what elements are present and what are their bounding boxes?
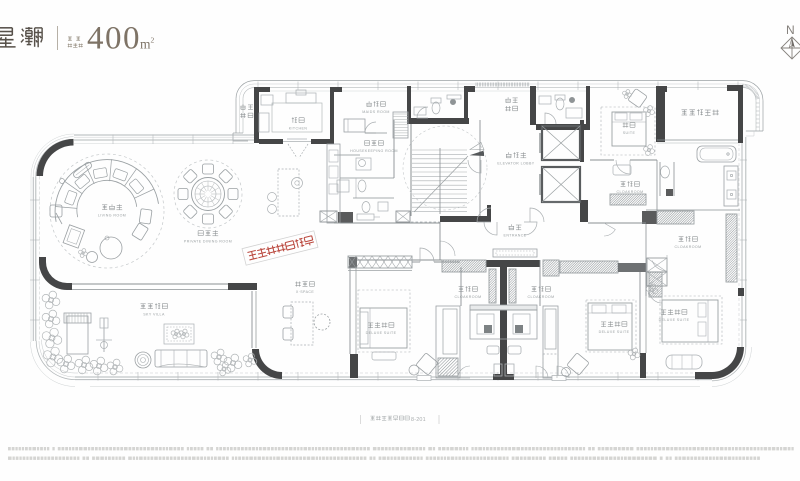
svg-text:CLOAKROOM: CLOAKROOM [675,245,702,249]
svg-text:MAIDS ROOM: MAIDS ROOM [362,110,390,114]
svg-text:LIVING ROOM: LIVING ROOM [98,213,126,217]
svg-text:DELUXE SUITE: DELUXE SUITE [599,330,630,334]
svg-text:400: 400 [87,21,141,57]
svg-text:X·SPACE: X·SPACE [296,290,315,294]
svg-text:KITCHEN: KITCHEN [289,126,308,130]
svg-text:DELUXE SUITE: DELUXE SUITE [366,331,397,335]
svg-text:SKY VILLA: SKY VILLA [143,312,165,316]
svg-text:8-201: 8-201 [411,417,426,423]
svg-text:SUITE: SUITE [623,131,636,135]
svg-text:CLOAKROOM: CLOAKROOM [455,295,482,299]
svg-text:CLOAKROOM: CLOAKROOM [617,190,644,194]
svg-text:ELEVATOR LOBBY: ELEVATOR LOBBY [497,161,534,165]
svg-text:ENTRANCE: ENTRANCE [504,233,527,237]
svg-text:PRIVATE DINING ROOM: PRIVATE DINING ROOM [184,239,232,243]
svg-text:N: N [786,23,795,37]
svg-text:HOUSEKEEPING ROOM: HOUSEKEEPING ROOM [350,149,398,153]
svg-text:CLOAKROOM: CLOAKROOM [528,295,555,299]
svg-text:DELUXE SUITE: DELUXE SUITE [659,318,690,322]
